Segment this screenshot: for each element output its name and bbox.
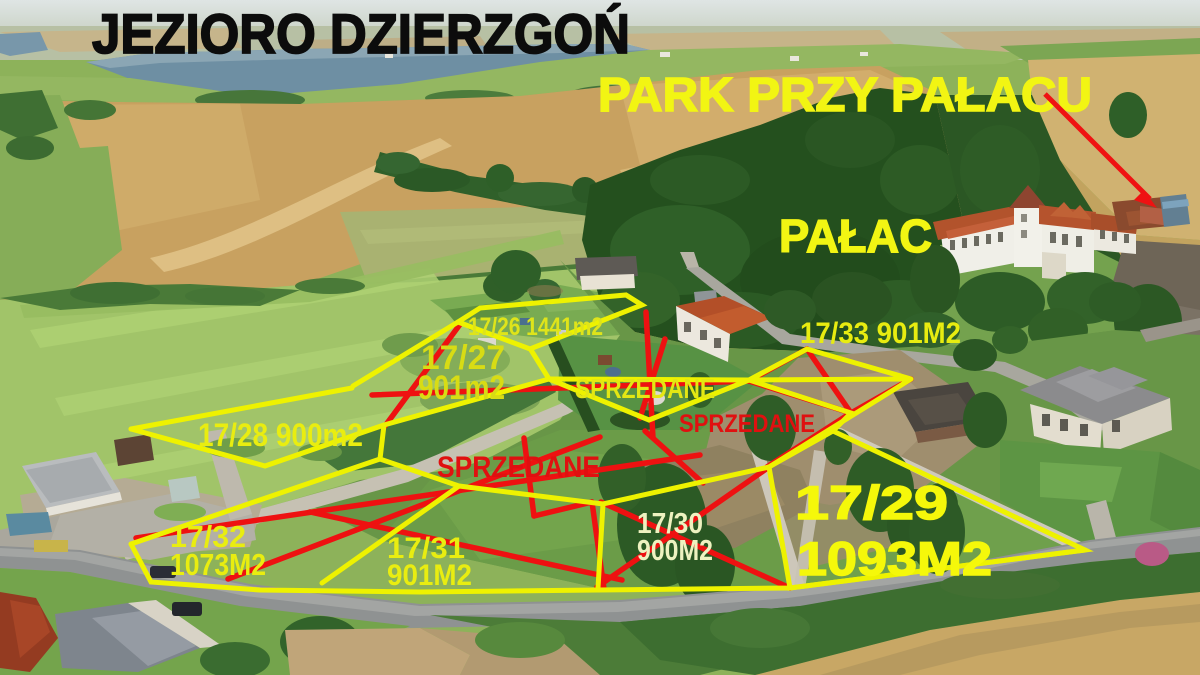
svg-text:17/33 901M2: 17/33 901M2 xyxy=(800,317,961,350)
svg-text:PARK PRZY PAŁACU: PARK PRZY PAŁACU xyxy=(598,69,1092,122)
svg-text:SPRZEDANE: SPRZEDANE xyxy=(575,373,715,404)
svg-text:SPRZEDANE: SPRZEDANE xyxy=(679,410,815,438)
svg-text:1093M2: 1093M2 xyxy=(797,532,992,585)
svg-text:JEZIORO DZIERZGOŃ: JEZIORO DZIERZGOŃ xyxy=(92,2,630,65)
svg-text:17/26 1441m2: 17/26 1441m2 xyxy=(468,313,603,341)
svg-text:17/28 900m2: 17/28 900m2 xyxy=(198,417,363,453)
svg-text:17/29: 17/29 xyxy=(795,476,948,529)
svg-text:901M2: 901M2 xyxy=(387,559,472,592)
svg-text:SPRZEDANE: SPRZEDANE xyxy=(437,451,600,484)
svg-text:901m2: 901m2 xyxy=(418,369,505,407)
svg-text:PAŁAC: PAŁAC xyxy=(779,210,932,262)
svg-text:1073M2: 1073M2 xyxy=(170,547,266,582)
svg-text:900M2: 900M2 xyxy=(637,535,713,567)
